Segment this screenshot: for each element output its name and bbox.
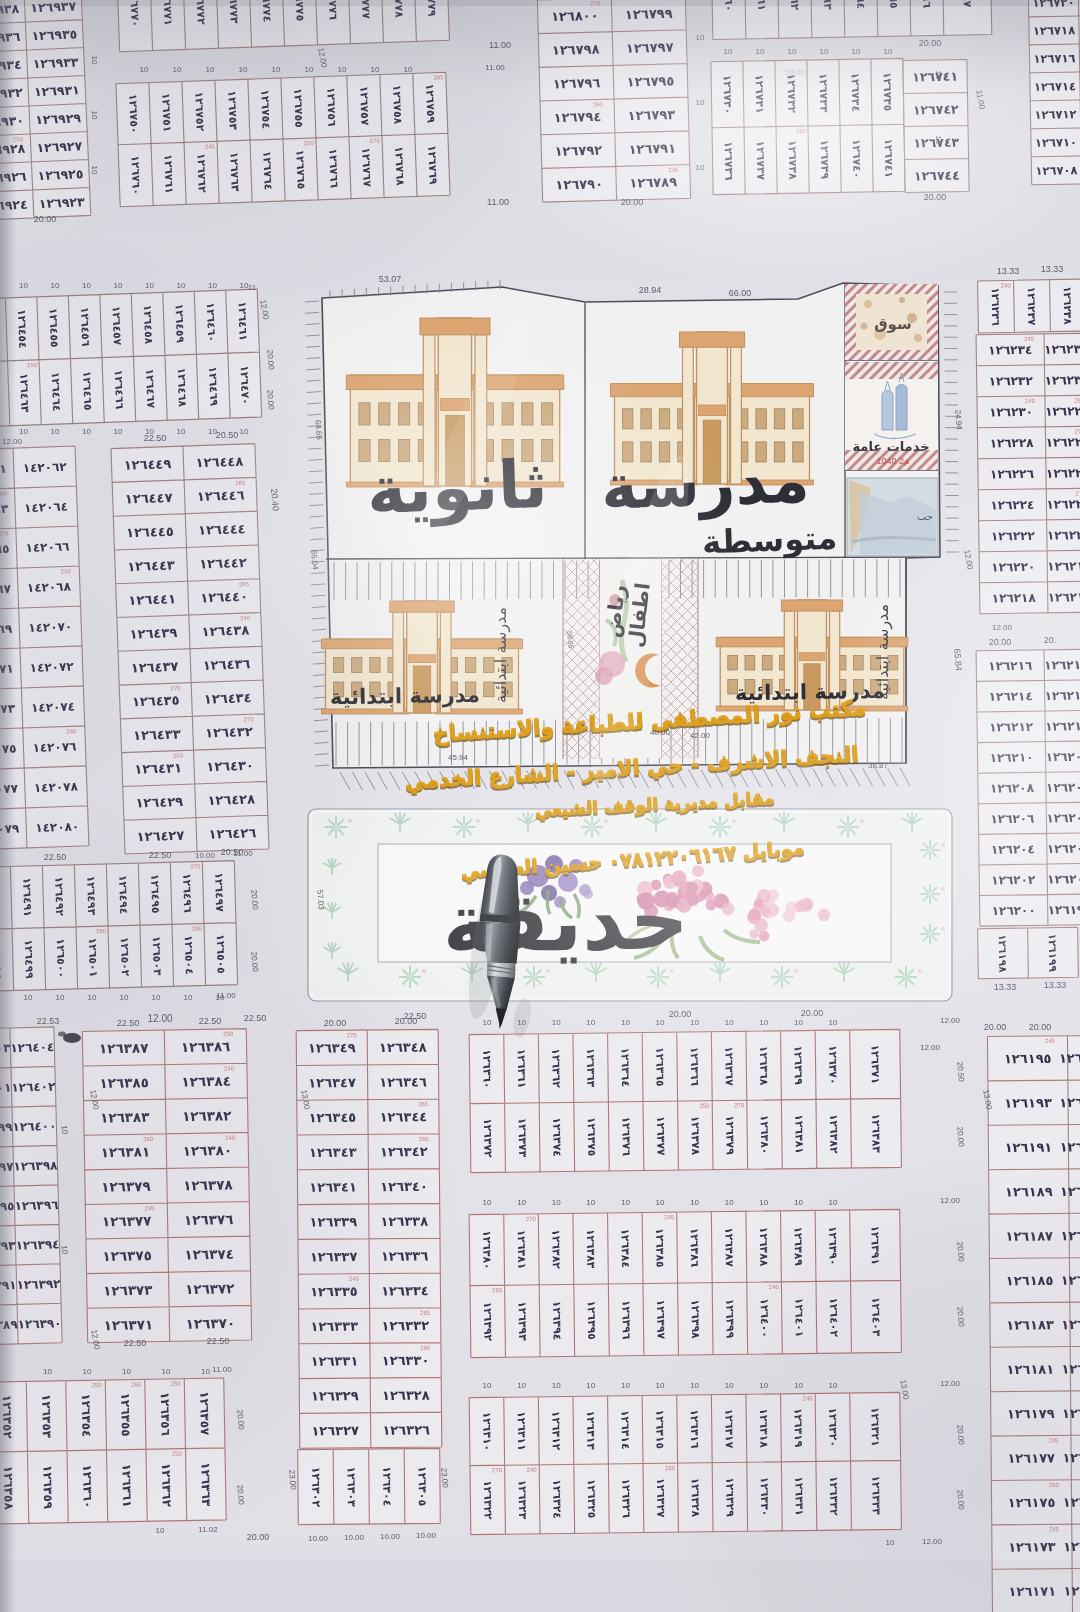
svg-text:١٢٦٢٢٩: ١٢٦٢٢٩: [1045, 404, 1080, 419]
svg-text:١٢٦١٩٢: ١٢٦١٩٢: [1059, 1095, 1080, 1110]
svg-text:١٢٦٣٨٠: ١٢٦٣٨٠: [758, 1115, 771, 1155]
svg-text:240: 240: [1025, 398, 1036, 404]
svg-text:١٢٦٣٠٣: ١٢٦٣٠٣: [345, 1466, 358, 1507]
svg-text:1040 م2: 1040 م2: [876, 456, 909, 466]
svg-text:١٢٦٢٣٦: ١٢٦٢٣٦: [990, 287, 1003, 326]
svg-text:10: 10: [517, 1198, 526, 1207]
svg-text:١٢٦٣١٤: ١٢٦٣١٤: [619, 1410, 632, 1450]
svg-text:سوق: سوق: [874, 315, 912, 333]
svg-text:١٢٦٣٨٢: ١٢٦٣٨٢: [549, 1229, 562, 1269]
svg-text:66.00: 66.00: [729, 288, 752, 298]
svg-text:10.00: 10.00: [380, 1532, 401, 1541]
svg-text:١٢٦٢٢٧: ١٢٦٢٢٧: [1045, 435, 1080, 450]
svg-text:١٢٦٣٨٦: ١٢٦٣٨٦: [688, 1228, 701, 1268]
svg-text:240: 240: [527, 1467, 538, 1473]
svg-text:١٢٦٣٨٢: ١٢٦٣٨٢: [827, 1114, 840, 1154]
svg-text:١٢٦٢٣٨: ١٢٦٢٣٨: [1062, 286, 1075, 325]
svg-text:250: 250: [700, 1103, 711, 1109]
svg-text:10: 10: [552, 1381, 561, 1390]
svg-text:١٢٦٣٢٢: ١٢٦٣٢٢: [481, 1480, 494, 1520]
svg-text:24.94: 24.94: [953, 409, 964, 430]
svg-text:١٢٦٣٢٤: ١٢٦٣٢٤: [550, 1479, 563, 1519]
svg-text:10: 10: [483, 1381, 492, 1390]
svg-text:10.00: 10.00: [416, 1531, 437, 1540]
svg-text:١٢٦٣٨٠: ١٢٦٣٨٠: [480, 1230, 493, 1270]
svg-text:١٢٦٣٩٣: ١٢٦٣٩٣: [516, 1301, 529, 1341]
svg-text:45.94: 45.94: [448, 753, 469, 762]
svg-text:١٢٦٣٢٣: ١٢٦٣٢٣: [516, 1480, 529, 1520]
svg-text:10: 10: [483, 1198, 492, 1207]
svg-text:١٢٦٣٨٤: ١٢٦٣٨٤: [619, 1228, 632, 1268]
svg-text:20.50: 20.50: [955, 1061, 966, 1082]
svg-text:13.33: 13.33: [997, 266, 1020, 276]
svg-text:١٢٦٣٩٦: ١٢٦٣٩٦: [619, 1300, 632, 1340]
svg-text:13.33: 13.33: [1041, 264, 1064, 274]
svg-text:١٢٦٣٠٤: ١٢٦٣٠٤: [380, 1466, 393, 1506]
svg-text:١٢٦٣٧٣: ١٢٦٣٧٣: [516, 1118, 529, 1158]
svg-text:١٢٦٣١٣: ١٢٦٣١٣: [584, 1410, 597, 1450]
svg-text:١٢٦٣٦٠: ١٢٦٣٦٠: [480, 1049, 493, 1089]
svg-text:270: 270: [492, 1467, 503, 1473]
svg-text:10: 10: [552, 1198, 561, 1207]
svg-text:١٢٦٣٩٧: ١٢٦٣٩٧: [654, 1299, 667, 1339]
svg-text:١٢٦٣٨٣: ١٢٦٣٨٣: [584, 1229, 597, 1269]
svg-text:10: 10: [621, 1381, 630, 1390]
svg-text:10.00: 10.00: [344, 1533, 365, 1542]
svg-text:١٢٦٣٧٢: ١٢٦٣٧٢: [481, 1118, 494, 1158]
svg-text:١٢٦١٩٠: ١٢٦١٩٠: [1060, 1139, 1080, 1154]
svg-text:20.00: 20.00: [955, 1126, 966, 1147]
svg-text:١٢٦٣٧٦: ١٢٦٣٧٦: [619, 1116, 632, 1156]
svg-text:10.00: 10.00: [308, 1534, 329, 1543]
svg-text:١٢٦٣٩٤: ١٢٦٣٩٤: [550, 1301, 563, 1341]
svg-text:١٢٦٢٢٨: ١٢٦٢٢٨: [989, 436, 1034, 451]
svg-text:10: 10: [517, 1381, 526, 1390]
svg-text:١٢٦٣١٠: ١٢٦٣١٠: [480, 1412, 493, 1452]
svg-text:260: 260: [492, 1287, 503, 1293]
svg-text:١٢٦٣٧٧: ١٢٦٣٧٧: [654, 1116, 667, 1156]
svg-text:270: 270: [1075, 428, 1080, 434]
svg-text:20.00: 20.00: [247, 1532, 270, 1542]
svg-text:١٢٦٣٧٨: ١٢٦٣٧٨: [689, 1116, 702, 1156]
svg-text:١٢٦٢٣٣: ١٢٦٢٣٣: [1044, 342, 1080, 357]
svg-text:١٢٦٣٧٥: ١٢٦٣٧٥: [585, 1117, 598, 1157]
svg-text:١٢٦٣١١: ١٢٦٣١١: [515, 1411, 528, 1451]
svg-text:١٢٦٢٣٠: ١٢٦٢٣٠: [989, 405, 1033, 420]
svg-text:10: 10: [586, 1198, 595, 1207]
svg-text:10: 10: [656, 1198, 665, 1207]
svg-text:١٢٦٣٨١: ١٢٦٣٨١: [792, 1114, 805, 1154]
svg-text:270: 270: [734, 1102, 745, 1108]
svg-text:260: 260: [420, 1345, 431, 1351]
svg-text:١٢٦٣٩٢: ١٢٦٣٩٢: [481, 1302, 494, 1342]
svg-text:١٢٦٣٨٥: ١٢٦٣٨٥: [653, 1228, 666, 1268]
svg-text:23.00: 23.00: [439, 1467, 450, 1488]
svg-text:245: 245: [664, 1214, 675, 1220]
svg-text:10: 10: [586, 1381, 595, 1390]
svg-text:240: 240: [1001, 282, 1012, 288]
svg-text:١٢٦٣٧٤: ١٢٦٣٧٤: [550, 1117, 563, 1157]
svg-text:270: 270: [526, 1216, 537, 1222]
svg-text:خدمات عامة: خدمات عامة: [852, 439, 929, 454]
svg-text:١٢٦٣٢٥: ١٢٦٣٢٥: [585, 1479, 598, 1519]
svg-text:245: 245: [1024, 336, 1035, 342]
svg-text:١٢٦٣٨١: ١٢٦٣٨١: [515, 1230, 528, 1270]
svg-text:١٢٦٢٣٧: ١٢٦٢٣٧: [1026, 287, 1039, 326]
svg-text:10: 10: [725, 1198, 734, 1207]
svg-text:28.94: 28.94: [639, 285, 662, 295]
svg-text:١٢٦٢٣٤: ١٢٦٢٣٤: [988, 343, 1032, 358]
svg-text:١٢٦٢٣٢: ١٢٦٢٣٢: [989, 374, 1034, 389]
svg-text:265: 265: [1074, 397, 1080, 403]
svg-text:١٢٦٣٠٥: ١٢٦٣٠٥: [416, 1466, 429, 1507]
svg-text:١٢٦٢٣١: ١٢٦٢٣١: [1045, 373, 1080, 388]
svg-text:10: 10: [621, 1198, 630, 1207]
svg-text:12.00: 12.00: [920, 1043, 941, 1052]
svg-text:١٢٦٣٧٩: ١٢٦٣٧٩: [723, 1115, 736, 1155]
svg-text:١٢٦٣٨٣: ١٢٦٣٨٣: [869, 1113, 882, 1153]
svg-text:10: 10: [690, 1198, 699, 1207]
svg-text:١٢٦١٩٣: ١٢٦١٩٣: [1004, 1095, 1052, 1110]
svg-text:10: 10: [759, 1198, 768, 1207]
svg-text:١٢٦٣١٢: ١٢٦٣١٢: [549, 1411, 562, 1451]
svg-text:١٢٦٣٢٦: ١٢٦٣٢٦: [382, 1422, 430, 1437]
svg-text:١٢٦٣٩٥: ١٢٦٣٩٥: [585, 1300, 598, 1340]
